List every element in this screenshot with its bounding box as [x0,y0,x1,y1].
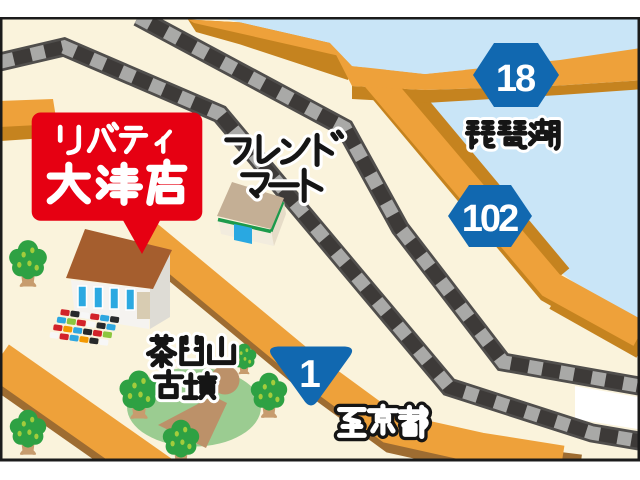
svg-text:1: 1 [299,353,321,396]
svg-text:102: 102 [462,198,518,240]
svg-text:18: 18 [496,58,535,100]
